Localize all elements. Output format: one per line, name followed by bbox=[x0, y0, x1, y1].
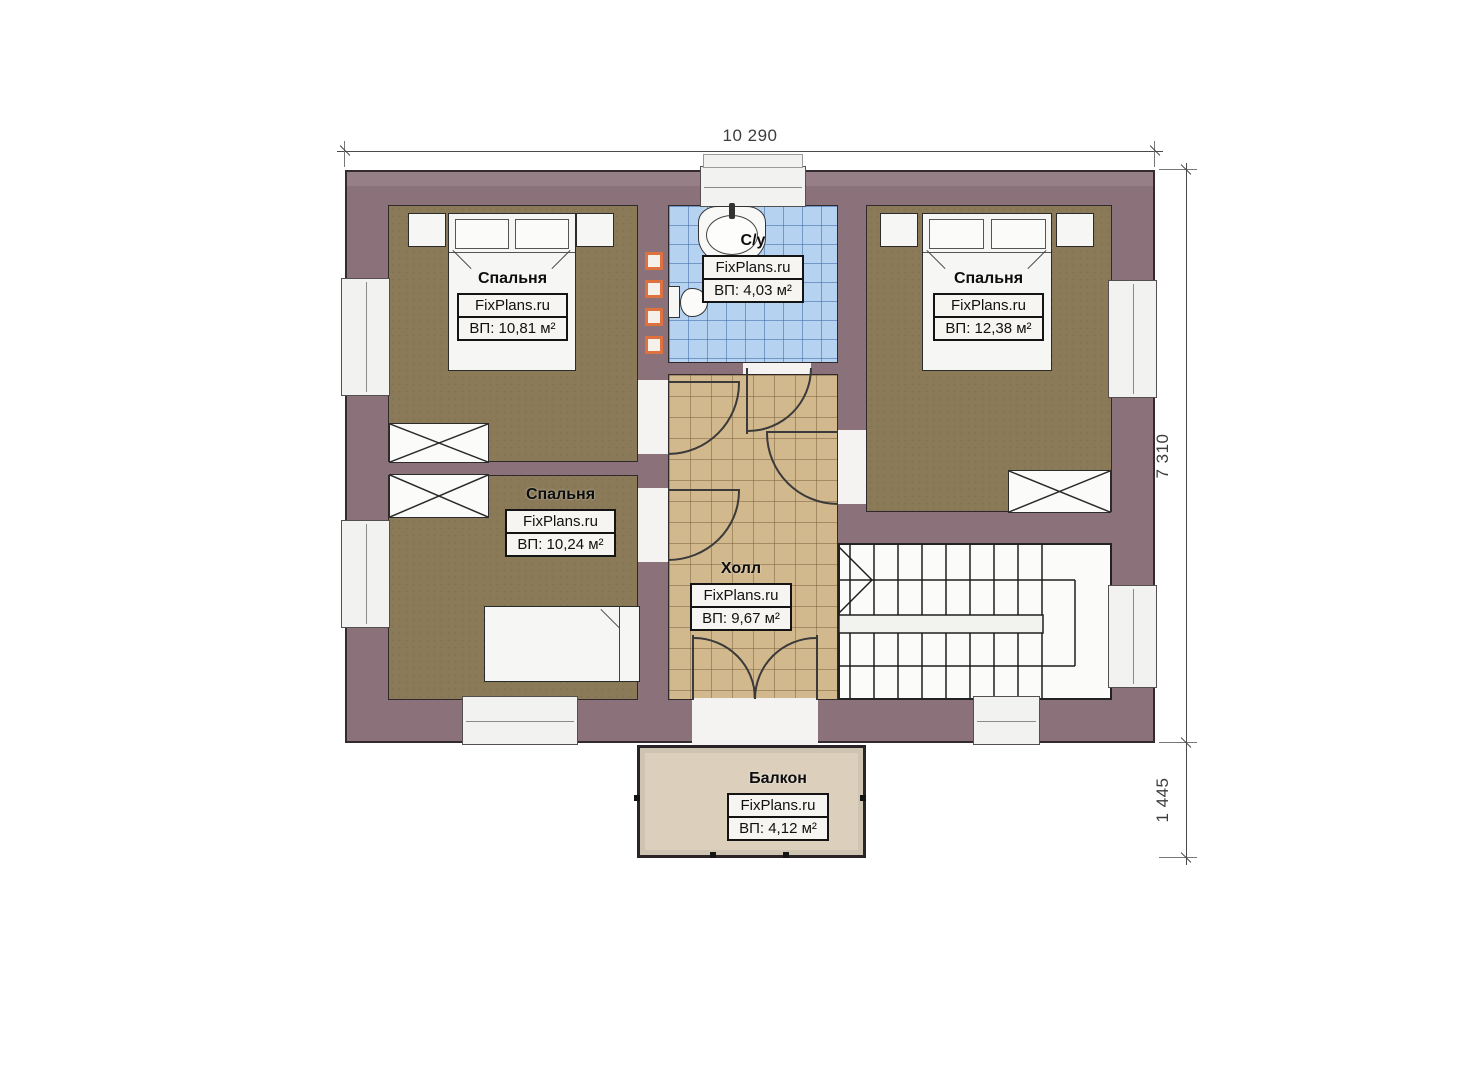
watermark-text: FixPlans.ru bbox=[459, 295, 565, 318]
pillow bbox=[455, 219, 509, 249]
room-label-hall: Холл FixPlans.ru ВП: 9,67 м² bbox=[676, 560, 806, 631]
footboard-line bbox=[619, 607, 620, 681]
window-glass-line bbox=[366, 524, 367, 624]
window-bottom-bedroom bbox=[462, 696, 578, 745]
room-label-bedroom-top-right: Спальня FixPlans.ru ВП: 12,38 м² bbox=[906, 270, 1071, 341]
staircase bbox=[838, 543, 1112, 700]
door-opening-bedroom-top-left bbox=[638, 380, 668, 454]
nightstand bbox=[880, 213, 918, 247]
window-glass-line bbox=[1133, 284, 1134, 394]
watermark-text: FixPlans.ru bbox=[692, 585, 790, 608]
watermark-box: FixPlans.ru ВП: 10,24 м² bbox=[505, 509, 615, 557]
sink-tap bbox=[729, 203, 735, 219]
window-top-sill bbox=[703, 154, 803, 168]
watermark-text: FixPlans.ru bbox=[704, 257, 802, 280]
blanket-edge bbox=[923, 252, 1051, 253]
nightstand bbox=[408, 213, 446, 247]
watermark-box: FixPlans.ru ВП: 12,38 м² bbox=[933, 293, 1043, 341]
wardrobe bbox=[389, 423, 489, 463]
door-opening-bedroom-top-right bbox=[838, 430, 866, 504]
watermark-box: FixPlans.ru ВП: 4,03 м² bbox=[702, 255, 804, 303]
room-title: Холл bbox=[721, 560, 761, 578]
dimension-line-right-main bbox=[1186, 163, 1187, 750]
vent-block bbox=[645, 252, 663, 270]
window-glass-line bbox=[366, 282, 367, 392]
dimension-line-right-balcony bbox=[1186, 743, 1187, 865]
dimension-balcony-depth: 1 445 bbox=[1153, 760, 1173, 840]
toilet-tank bbox=[668, 286, 680, 318]
window-glass-line bbox=[704, 187, 802, 188]
window-glass-line bbox=[1133, 589, 1134, 684]
watermark-text: FixPlans.ru bbox=[935, 295, 1041, 318]
balcony-door-leaf-right bbox=[816, 635, 818, 700]
blanket-edge bbox=[449, 252, 575, 253]
room-label-bathroom: С/у FixPlans.ru ВП: 4,03 м² bbox=[690, 232, 816, 303]
room-title: Спальня bbox=[478, 270, 547, 288]
room-title: Спальня bbox=[526, 486, 595, 504]
room-area: ВП: 10,24 м² bbox=[507, 534, 613, 555]
witness-line bbox=[1159, 857, 1197, 858]
balcony-post bbox=[710, 852, 716, 858]
wardrobe bbox=[389, 474, 489, 518]
balcony-post bbox=[860, 795, 866, 801]
room-title: Спальня bbox=[954, 270, 1023, 288]
vent-block bbox=[645, 336, 663, 354]
vent-block bbox=[645, 280, 663, 298]
room-label-balcony: Балкон FixPlans.ru ВП: 4,12 м² bbox=[716, 770, 840, 841]
dimension-right-height: 7 310 bbox=[1153, 416, 1173, 496]
window-glass-line bbox=[466, 721, 574, 722]
blanket-fold bbox=[600, 609, 619, 628]
room-area: ВП: 4,03 м² bbox=[704, 280, 802, 301]
window-right-upper bbox=[1108, 280, 1157, 398]
nightstand bbox=[576, 213, 614, 247]
vent-block bbox=[645, 308, 663, 326]
watermark-text: FixPlans.ru bbox=[507, 511, 613, 534]
floor-plan: Спальня FixPlans.ru ВП: 10,81 м² С/у Fix… bbox=[0, 0, 1473, 1080]
room-label-bedroom-top-left: Спальня FixPlans.ru ВП: 10,81 м² bbox=[430, 270, 595, 341]
witness-line bbox=[1159, 742, 1197, 743]
window-left-upper bbox=[341, 278, 390, 396]
single-bed bbox=[484, 606, 640, 682]
window-top-bathroom bbox=[700, 166, 806, 207]
room-label-bedroom-mid-left: Спальня FixPlans.ru ВП: 10,24 м² bbox=[478, 486, 643, 557]
window-right-lower bbox=[1108, 585, 1157, 688]
watermark-text: FixPlans.ru bbox=[729, 795, 827, 818]
room-area: ВП: 12,38 м² bbox=[935, 318, 1041, 339]
watermark-box: FixPlans.ru ВП: 4,12 м² bbox=[727, 793, 829, 841]
window-left-lower bbox=[341, 520, 390, 628]
pillow bbox=[515, 219, 569, 249]
room-area: ВП: 10,81 м² bbox=[459, 318, 565, 339]
balcony-post bbox=[783, 852, 789, 858]
pillow bbox=[929, 219, 984, 249]
wardrobe bbox=[1008, 470, 1111, 513]
witness-line bbox=[344, 141, 345, 167]
watermark-box: FixPlans.ru ВП: 9,67 м² bbox=[690, 583, 792, 631]
witness-line bbox=[1159, 169, 1197, 170]
dimension-line-top bbox=[337, 151, 1163, 152]
watermark-box: FixPlans.ru ВП: 10,81 м² bbox=[457, 293, 567, 341]
witness-line bbox=[1154, 141, 1155, 167]
balcony-post bbox=[634, 795, 640, 801]
dimension-top-width: 10 290 bbox=[645, 126, 855, 146]
room-title: С/у bbox=[741, 232, 766, 250]
room-area: ВП: 4,12 м² bbox=[729, 818, 827, 839]
room-title: Балкон bbox=[749, 770, 807, 788]
pillow bbox=[991, 219, 1046, 249]
door-opening-balcony bbox=[692, 698, 818, 745]
nightstand bbox=[1056, 213, 1094, 247]
window-glass-line bbox=[977, 721, 1036, 722]
room-area: ВП: 9,67 м² bbox=[692, 608, 790, 629]
window-bottom-stairs bbox=[973, 696, 1040, 745]
